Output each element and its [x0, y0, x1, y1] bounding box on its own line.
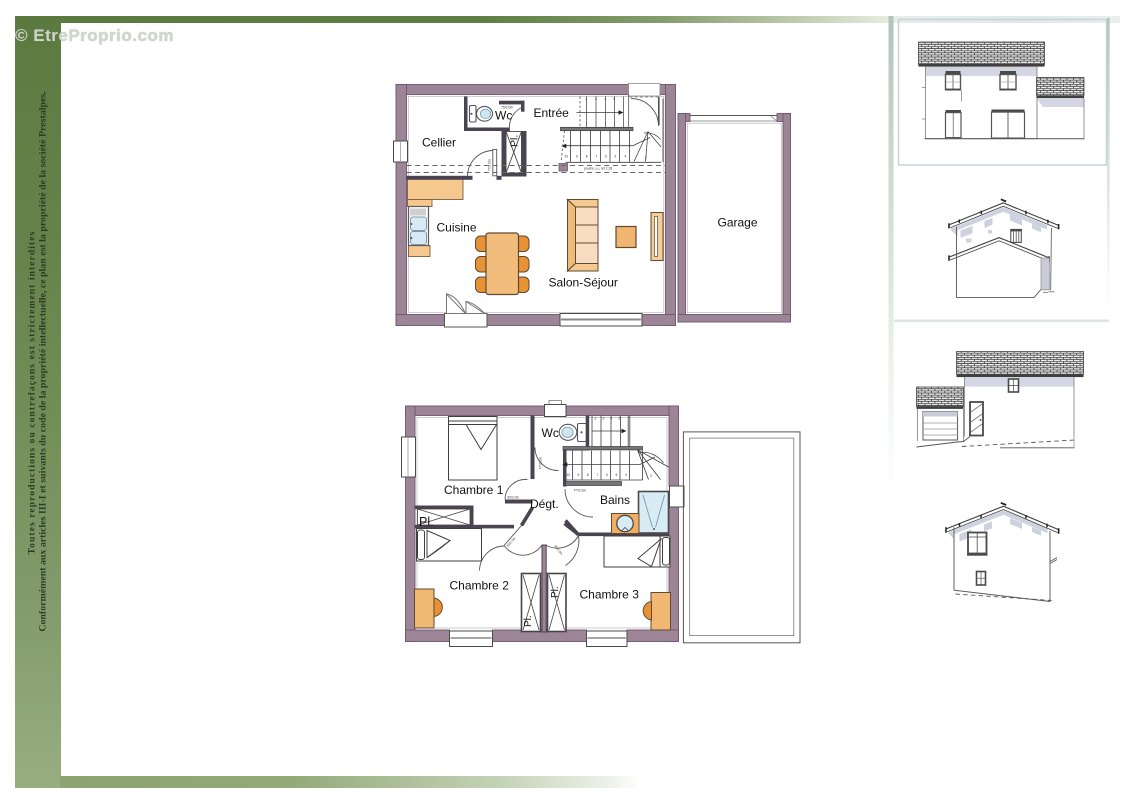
svg-text:Cuisine: Cuisine — [437, 221, 477, 235]
svg-text:Salon-Séjour: Salon-Séjour — [549, 276, 618, 290]
svg-text:Pl.: Pl. — [523, 615, 534, 627]
svg-text:Pl.: Pl. — [419, 515, 434, 529]
svg-text:83/2.0m: 83/2.0m — [506, 536, 517, 547]
svg-text:83/2.0m: 83/2.0m — [508, 496, 520, 500]
svg-text:8: 8 — [586, 154, 588, 158]
svg-text:7: 7 — [596, 154, 598, 158]
svg-text:4: 4 — [625, 154, 627, 158]
svg-text:8: 8 — [587, 473, 589, 477]
svg-text:3: 3 — [595, 97, 597, 101]
svg-text:5: 5 — [614, 97, 616, 101]
svg-text:Chambre 3: Chambre 3 — [580, 588, 640, 602]
svg-text:4: 4 — [605, 97, 607, 101]
svg-text:2: 2 — [586, 97, 588, 101]
svg-text:Dégt.: Dégt. — [530, 497, 559, 511]
svg-text:9: 9 — [576, 154, 578, 158]
svg-text:3: 3 — [650, 474, 652, 478]
svg-text:Garage: Garage — [718, 216, 758, 230]
svg-text:Wc: Wc — [495, 109, 512, 123]
svg-text:5: 5 — [619, 417, 621, 421]
svg-text:9: 9 — [578, 473, 580, 477]
svg-text:5: 5 — [615, 154, 617, 158]
svg-text:3: 3 — [603, 417, 605, 421]
svg-text:4: 4 — [611, 417, 613, 421]
svg-text:45/2.0m: 45/2.0m — [553, 544, 563, 556]
svg-text:Cellier: Cellier — [422, 136, 456, 150]
svg-text:6: 6 — [605, 154, 607, 158]
svg-text:4: 4 — [625, 473, 627, 477]
svg-text:Bains: Bains — [600, 493, 630, 507]
svg-text:Entrée: Entrée — [534, 106, 570, 120]
svg-text:2: 2 — [595, 417, 597, 421]
svg-text:FT/2.0m: FT/2.0m — [539, 457, 543, 469]
svg-text:Pl.: Pl. — [509, 135, 521, 147]
svg-text:10: 10 — [567, 473, 571, 477]
svg-text:Pl.: Pl. — [550, 586, 561, 598]
svg-text:Chambre 1: Chambre 1 — [444, 483, 504, 497]
svg-text:poutre △△ ret 2.28: poutre △△ ret 2.28 — [584, 166, 612, 170]
svg-text:3: 3 — [645, 156, 647, 160]
svg-text:FT/2.0m: FT/2.0m — [574, 489, 586, 493]
svg-text:6: 6 — [606, 473, 608, 477]
svg-text:10: 10 — [565, 154, 569, 158]
svg-text:7: 7 — [597, 473, 599, 477]
svg-text:5: 5 — [616, 473, 618, 477]
svg-text:Chambre 2: Chambre 2 — [450, 579, 510, 593]
svg-text:Wc: Wc — [542, 426, 559, 440]
